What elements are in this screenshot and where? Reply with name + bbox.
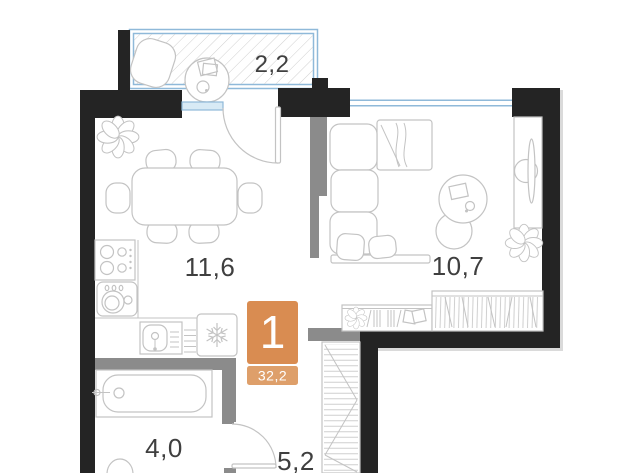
wardrobe-hatch-icon bbox=[432, 291, 543, 331]
bathtub-icon bbox=[92, 370, 212, 417]
wall-balcony-spur bbox=[118, 30, 130, 90]
wall-top-mid bbox=[278, 88, 350, 117]
wall-right bbox=[542, 117, 560, 348]
flower-plant-icon bbox=[505, 224, 542, 261]
living-area-label: 10,7 bbox=[432, 251, 485, 281]
partition-bathroom-top bbox=[95, 358, 236, 370]
wall-living-bottom bbox=[360, 330, 560, 348]
wall-notch bbox=[312, 78, 328, 90]
door-swing-icon bbox=[232, 424, 276, 468]
partition-kitchen-living-thin bbox=[310, 196, 319, 258]
wall-shadow bbox=[560, 90, 563, 351]
hallway-wardrobe-icon bbox=[322, 342, 360, 473]
stove-burners-icon bbox=[95, 240, 135, 280]
partition-bathroom-right bbox=[222, 370, 236, 422]
balcony-door-leaf bbox=[276, 107, 281, 163]
partition-kitchen-living bbox=[310, 117, 327, 196]
sink-icon bbox=[140, 322, 182, 354]
bathroom: 4,0 bbox=[92, 370, 212, 473]
wall-kitchen-top bbox=[80, 90, 182, 118]
cup-dot bbox=[205, 89, 208, 92]
flower-plant-icon bbox=[345, 307, 367, 329]
door-jamb-bottom bbox=[224, 468, 236, 473]
wall-left bbox=[80, 90, 95, 473]
balcony-door-threshold bbox=[182, 102, 223, 110]
floor-plan-canvas: 2,2 bbox=[0, 0, 640, 473]
kitchen-dining-room: 11,6 bbox=[95, 116, 262, 356]
sofa-icon bbox=[330, 120, 432, 263]
area-badge: 1 32,2 bbox=[247, 301, 298, 385]
flower-plant-icon bbox=[97, 116, 139, 158]
bathroom-door-leaf bbox=[232, 464, 276, 468]
badge-total-area: 32,2 bbox=[258, 368, 287, 384]
badge-rooms-count: 1 bbox=[260, 306, 286, 358]
door-swing-icon bbox=[223, 108, 278, 163]
bathroom-area-label: 4,0 bbox=[145, 433, 183, 463]
tv-stand-icon bbox=[514, 117, 542, 228]
dish-rack bbox=[184, 330, 196, 352]
floor-plan: 2,2 bbox=[0, 0, 640, 473]
picture-frame-icon bbox=[412, 309, 426, 323]
washing-machine-icon bbox=[97, 282, 137, 316]
snowflake-fridge-icon bbox=[197, 314, 237, 356]
wall-top-right bbox=[512, 88, 560, 117]
door-jamb-top bbox=[222, 420, 234, 424]
bathroom-sink-icon bbox=[107, 459, 133, 473]
dining-table-icon bbox=[132, 168, 237, 225]
wall-shadow bbox=[363, 348, 562, 351]
wall-hallway-right bbox=[360, 348, 378, 473]
hallway-area-label: 5,2 bbox=[277, 446, 315, 473]
living-room: 10,7 bbox=[330, 117, 543, 331]
balcony-area-label: 2,2 bbox=[255, 51, 290, 78]
sideboard-icon bbox=[342, 305, 432, 331]
kitchen-area-label: 11,6 bbox=[185, 252, 236, 282]
coffee-table-icon bbox=[436, 175, 487, 249]
